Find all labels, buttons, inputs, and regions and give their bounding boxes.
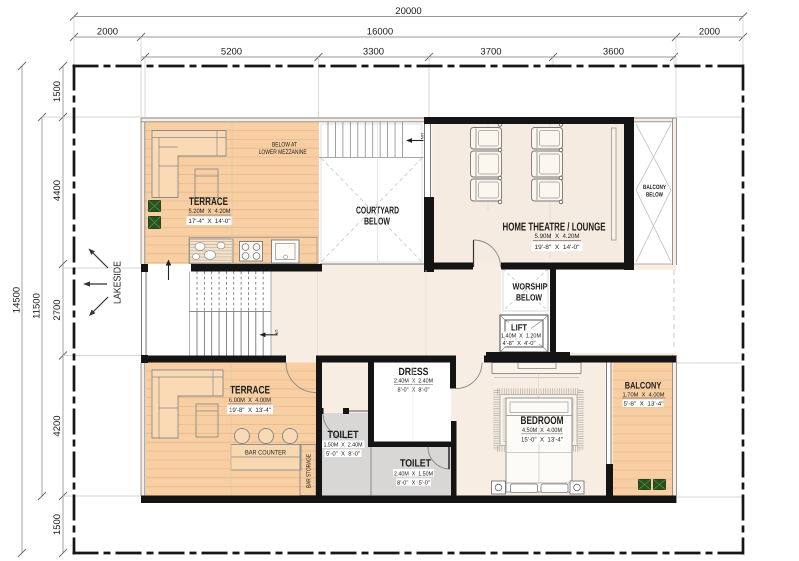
svg-text:BAR STORAGE: BAR STORAGE — [306, 454, 313, 488]
svg-text:LIFT: LIFT — [511, 323, 527, 333]
svg-text:2.40M X 1.50M: 2.40M X 1.50M — [394, 470, 433, 477]
svg-text:BEDROOM: BEDROOM — [521, 415, 564, 427]
svg-text:2000: 2000 — [97, 27, 118, 38]
svg-text:1.70M X 4.00M: 1.70M X 4.00M — [623, 391, 665, 398]
svg-text:LAKESIDE: LAKESIDE — [113, 261, 124, 304]
svg-text:5'-8" X 13'-4": 5'-8" X 13'-4" — [624, 401, 664, 408]
svg-text:14500: 14500 — [12, 287, 23, 313]
svg-text:HOME THEATRE / LOUNGE: HOME THEATRE / LOUNGE — [503, 222, 606, 234]
svg-text:6.00M X 4.00M: 6.00M X 4.00M — [229, 397, 271, 404]
svg-text:5.20M X 4.20M: 5.20M X 4.20M — [189, 208, 231, 215]
svg-text:UP: UP — [274, 330, 279, 336]
svg-text:8'-0" X 5'-0": 8'-0" X 5'-0" — [397, 479, 430, 486]
svg-text:TERRACE: TERRACE — [189, 196, 228, 208]
svg-text:20000: 20000 — [395, 6, 421, 17]
svg-text:BALCONY: BALCONY — [643, 184, 667, 191]
svg-text:WORSHIP: WORSHIP — [513, 282, 548, 292]
svg-text:3700: 3700 — [480, 47, 501, 58]
svg-text:5200: 5200 — [221, 47, 242, 58]
svg-text:4200: 4200 — [52, 415, 63, 436]
svg-text:16000: 16000 — [367, 27, 393, 38]
svg-text:BALCONY: BALCONY — [625, 381, 662, 392]
svg-text:BELOW AT: BELOW AT — [272, 142, 297, 149]
svg-text:1.40M X 1.20M: 1.40M X 1.20M — [501, 332, 541, 339]
svg-text:17'-4" X 14'-0": 17'-4" X 14'-0" — [189, 218, 231, 225]
svg-text:DRESS: DRESS — [399, 366, 429, 378]
svg-text:BELOW: BELOW — [646, 192, 663, 199]
svg-text:5.90M X 4.20M: 5.90M X 4.20M — [535, 233, 580, 240]
svg-text:8'-0" X 8'-0": 8'-0" X 8'-0" — [398, 386, 430, 393]
svg-text:2700: 2700 — [52, 299, 63, 320]
svg-text:19'-8" X 14'-0": 19'-8" X 14'-0" — [535, 244, 580, 251]
svg-text:4.50M X 4.00M: 4.50M X 4.00M — [522, 427, 562, 434]
svg-text:2000: 2000 — [699, 27, 720, 38]
svg-text:4'-8" X 4'-0": 4'-8" X 4'-0" — [503, 340, 536, 347]
svg-text:11500: 11500 — [32, 293, 43, 319]
svg-text:2.40M X 2.40M: 2.40M X 2.40M — [394, 378, 433, 385]
svg-text:5'-0" X 8'-0": 5'-0" X 8'-0" — [326, 451, 360, 458]
svg-text:1.50M X 2.40M: 1.50M X 2.40M — [324, 442, 363, 449]
svg-text:4400: 4400 — [52, 180, 63, 201]
svg-text:19'-8" X 13'-4": 19'-8" X 13'-4" — [229, 407, 271, 414]
svg-text:BELOW: BELOW — [516, 293, 542, 303]
svg-text:TERRACE: TERRACE — [230, 384, 270, 396]
svg-text:TOILET: TOILET — [328, 429, 359, 441]
svg-text:3600: 3600 — [603, 47, 624, 58]
svg-text:1500: 1500 — [52, 514, 63, 535]
svg-text:LOWER MEZZANINE: LOWER MEZZANINE — [259, 149, 308, 156]
svg-text:BAR COUNTER: BAR COUNTER — [245, 450, 286, 457]
svg-text:TOILET: TOILET — [400, 458, 431, 470]
svg-text:3300: 3300 — [363, 47, 384, 58]
svg-text:15'-0" X 13'-4": 15'-0" X 13'-4" — [521, 437, 563, 444]
svg-text:1500: 1500 — [52, 81, 63, 102]
